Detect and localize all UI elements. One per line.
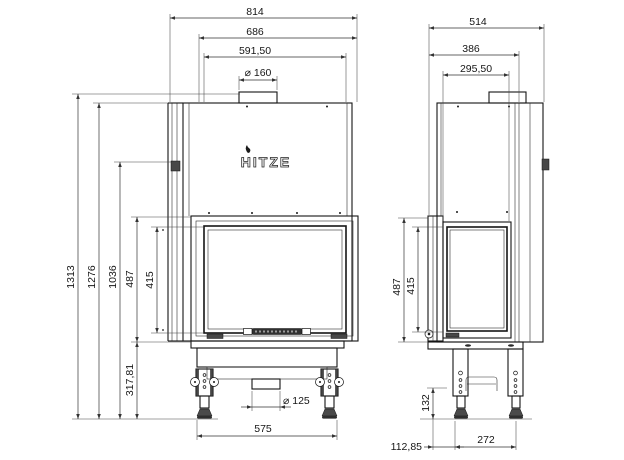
technical-drawing: HITZE bbox=[0, 0, 624, 460]
front-firebox-door bbox=[191, 212, 358, 341]
front-view: HITZE bbox=[65, 6, 358, 440]
dim-side-foot-height: 132 bbox=[420, 394, 432, 412]
side-glass bbox=[447, 227, 507, 331]
side-rear-foot bbox=[509, 409, 523, 416]
front-air-inlet-duct bbox=[252, 379, 280, 389]
side-flue-collar bbox=[489, 92, 526, 103]
front-left-foot bbox=[197, 409, 212, 416]
dim-side-glass-height: 415 bbox=[405, 277, 417, 295]
side-view: 514 386 295,50 487 415 132 112,85 272 bbox=[391, 16, 549, 453]
brand-logo-text: HITZE bbox=[241, 154, 291, 170]
front-left-leg bbox=[191, 369, 219, 419]
front-right-leg bbox=[316, 369, 344, 419]
front-right-foot bbox=[322, 409, 337, 416]
dim-side-leg-spacing: 272 bbox=[477, 434, 495, 446]
dim-front-damper-height: 1036 bbox=[107, 265, 119, 289]
side-door-frame bbox=[428, 211, 508, 341]
dim-side-front-offset: 112,85 bbox=[391, 441, 422, 453]
dim-front-flue-diameter: ⌀ 160 bbox=[245, 67, 272, 79]
dim-front-base-height: 317,81 bbox=[124, 364, 136, 396]
front-body bbox=[183, 103, 352, 341]
dim-front-glass-height: 415 bbox=[144, 271, 156, 289]
side-air-damper bbox=[542, 159, 549, 170]
dim-front-total-height: 1313 bbox=[65, 265, 77, 289]
dim-side-firebox-height: 487 bbox=[391, 278, 403, 296]
dim-front-firebox-height: 487 bbox=[124, 270, 136, 288]
dim-front-body-width: 686 bbox=[246, 26, 264, 38]
dim-front-leg-spacing: 575 bbox=[254, 423, 272, 435]
front-flue-collar bbox=[239, 92, 277, 103]
dim-side-glass-depth: 295,50 bbox=[460, 63, 492, 75]
front-extension-lines bbox=[72, 14, 357, 440]
dim-side-body-depth: 386 bbox=[462, 43, 480, 55]
front-air-damper bbox=[171, 161, 180, 171]
side-rear-leg bbox=[508, 349, 523, 419]
flame-icon bbox=[246, 145, 251, 153]
side-dimensions: 514 386 295,50 487 415 132 112,85 272 bbox=[391, 16, 544, 453]
dim-side-total-depth: 514 bbox=[469, 16, 487, 28]
dim-front-body-height: 1276 bbox=[86, 265, 98, 289]
side-front-foot bbox=[454, 409, 468, 416]
dim-front-total-width: 814 bbox=[246, 6, 264, 18]
drawing-canvas: HITZE bbox=[0, 0, 624, 460]
front-glass bbox=[204, 226, 346, 333]
side-glass-panel bbox=[425, 222, 511, 338]
side-extension-lines bbox=[398, 24, 544, 450]
dim-front-air-inlet-diameter: ⌀ 125 bbox=[283, 395, 310, 407]
dim-front-glass-width: 591,50 bbox=[239, 45, 271, 57]
front-left-side-frame bbox=[162, 103, 183, 341]
front-brand-logo: HITZE bbox=[241, 145, 291, 170]
